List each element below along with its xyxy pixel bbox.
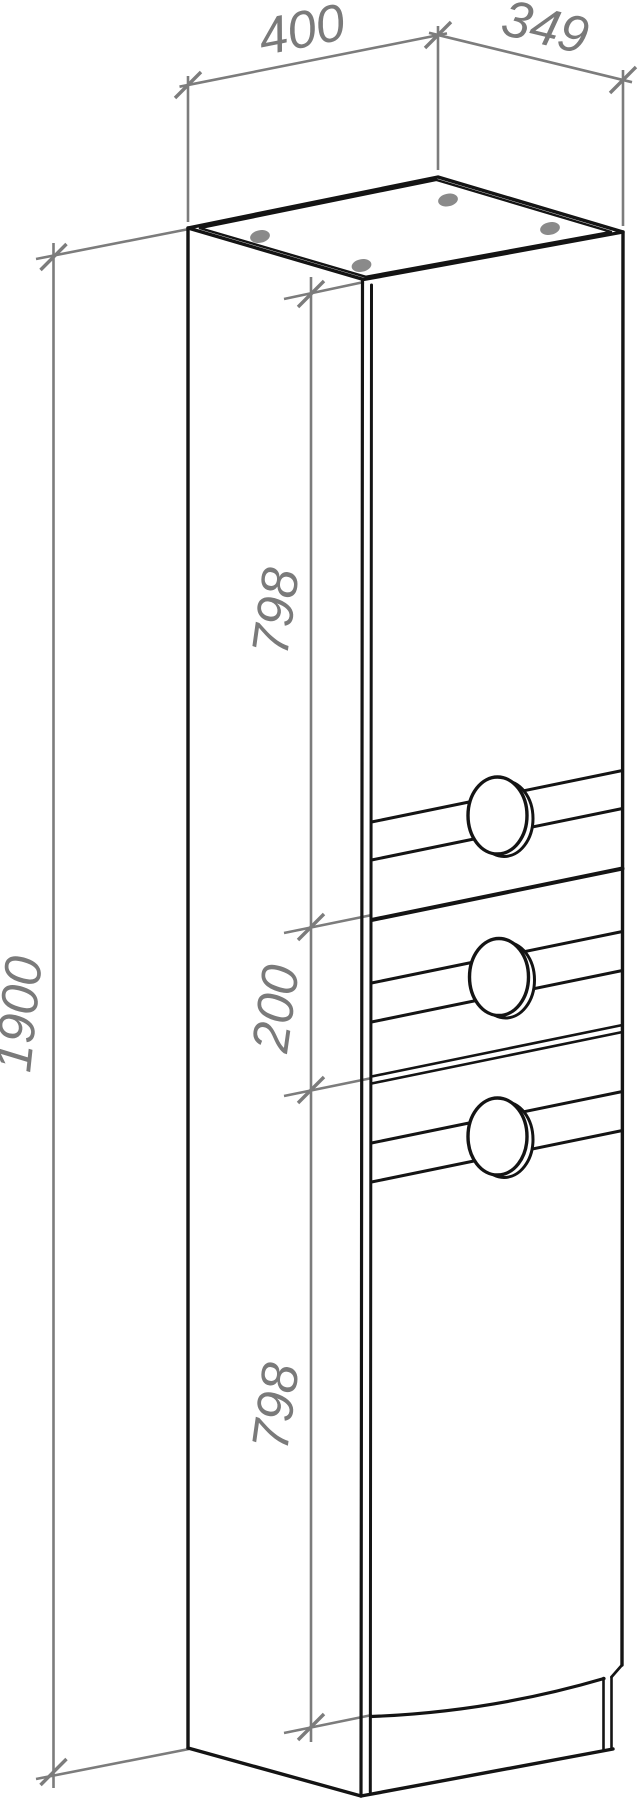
ext-line-1900-top	[36, 229, 189, 259]
dim-label-total-height: 1900	[0, 954, 54, 1075]
dim-label-lower-door: 798	[241, 1360, 311, 1454]
dim-label-upper-door: 798	[241, 565, 311, 659]
door-front-edge	[370, 285, 371, 1792]
dim-label-width-top: 400	[253, 0, 350, 67]
drawer-handle-face	[470, 939, 529, 1016]
right-rear-edge	[622, 232, 623, 1665]
dim-label-depth-top: 349	[496, 0, 594, 66]
lower-handle-face	[468, 1098, 527, 1175]
upper-door-handle	[468, 777, 533, 857]
ext-line-1900-bottom	[36, 1749, 189, 1779]
front-corner-edge	[361, 280, 363, 1796]
lower-door-handle	[468, 1098, 533, 1178]
dim-label-drawer: 200	[241, 962, 311, 1057]
upper-handle-face	[468, 777, 527, 854]
drawer-handle	[470, 939, 535, 1019]
technical-drawing-page: 400 349 1900 798 200 798	[0, 0, 643, 1800]
cabinet-dimension-drawing: 400 349 1900 798 200 798	[0, 0, 643, 1800]
handles	[468, 777, 535, 1178]
